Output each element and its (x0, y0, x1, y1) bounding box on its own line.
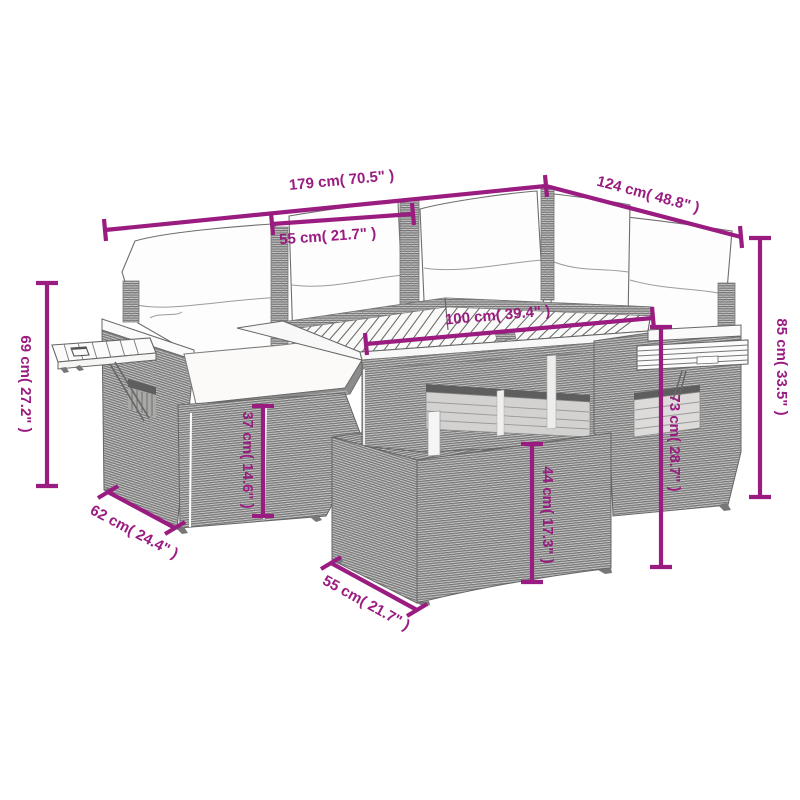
svg-text:44 cm( 17.3" ): 44 cm( 17.3" ) (539, 466, 556, 563)
svg-text:85 cm( 33.5" ): 85 cm( 33.5" ) (773, 318, 790, 415)
svg-text:37 cm( 14.6" ): 37 cm( 14.6" ) (239, 411, 256, 508)
svg-text:69 cm( 27.2" ): 69 cm( 27.2" ) (17, 335, 34, 432)
svg-text:179 cm( 70.5" ): 179 cm( 70.5" ) (288, 167, 395, 194)
svg-text:73 cm( 28.7" ): 73 cm( 28.7" ) (666, 394, 683, 491)
